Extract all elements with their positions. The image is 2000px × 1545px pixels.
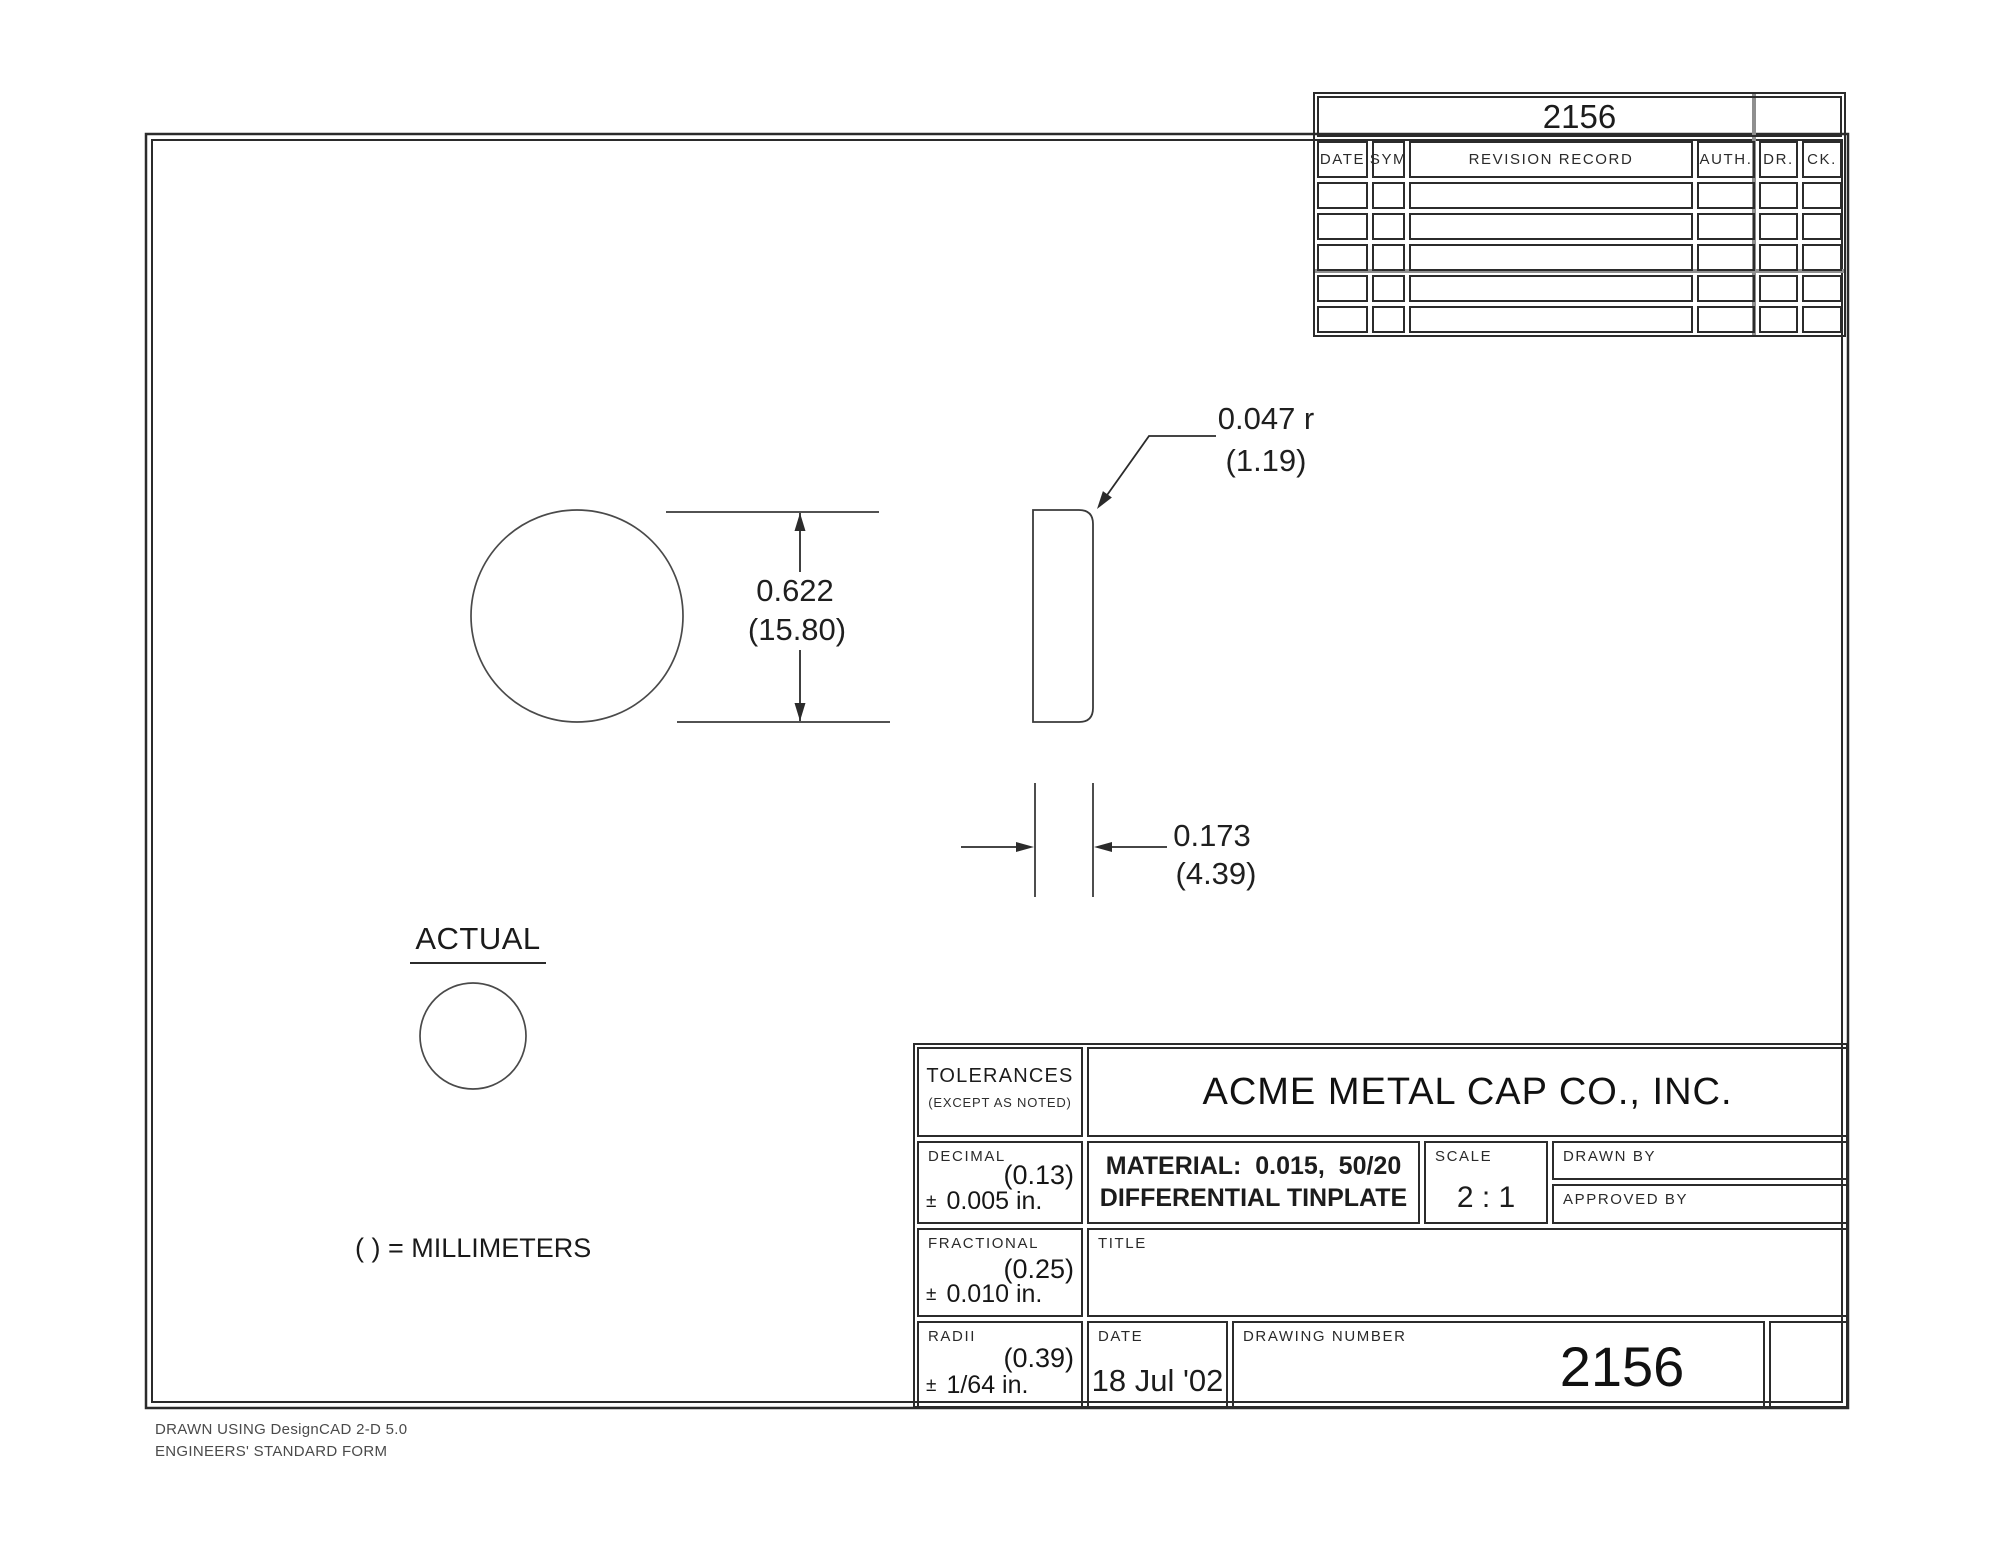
revision-row-cell bbox=[1802, 182, 1842, 209]
engineering-drawing-sheet: { "revision_table": { "header_number": "… bbox=[0, 0, 2000, 1545]
revision-row-cell bbox=[1697, 306, 1755, 333]
diameter-value-mm: (15.80) bbox=[748, 612, 846, 648]
thickness-value-mm: (4.39) bbox=[1176, 856, 1257, 892]
units-note: ( ) = MILLIMETERS bbox=[355, 1233, 591, 1264]
decimal-value: ±0.005 in. bbox=[926, 1187, 1042, 1216]
arrowhead-left-icon bbox=[1094, 842, 1112, 852]
revision-row-cell bbox=[1409, 275, 1693, 302]
leader-arrowhead-icon bbox=[1097, 491, 1112, 509]
revision-row-cell bbox=[1317, 244, 1368, 271]
revision-row-cell bbox=[1759, 182, 1798, 209]
revision-row-cell bbox=[1759, 213, 1798, 240]
plus-minus-icon: ± bbox=[926, 1375, 946, 1396]
radius-value-in: 0.047 r bbox=[1218, 401, 1315, 437]
fractional-value-text: 0.010 in. bbox=[946, 1280, 1042, 1308]
radii-value: ±1/64 in. bbox=[926, 1371, 1028, 1400]
revision-col-record: REVISION RECORD bbox=[1409, 141, 1693, 178]
revision-row-cell bbox=[1372, 182, 1405, 209]
revision-row-cell bbox=[1317, 213, 1368, 240]
decimal-tolerance-cell: DECIMAL (0.13) ±0.005 in. bbox=[917, 1141, 1083, 1224]
date-label: DATE bbox=[1098, 1328, 1143, 1345]
approved-by-label: APPROVED BY bbox=[1563, 1191, 1688, 1208]
revision-row-cell bbox=[1759, 275, 1798, 302]
date-value: 18 Jul '02 bbox=[1089, 1363, 1226, 1399]
date-cell: DATE 18 Jul '02 bbox=[1087, 1321, 1228, 1408]
fractional-label: FRACTIONAL bbox=[928, 1235, 1039, 1252]
company-name: ACME METAL CAP CO., INC. bbox=[1087, 1047, 1848, 1137]
approved-by-cell: APPROVED BY bbox=[1552, 1184, 1848, 1224]
tolerances-subtitle: (EXCEPT AS NOTED) bbox=[919, 1095, 1081, 1110]
side-view-outline bbox=[1033, 510, 1093, 722]
revision-col-dr: DR. bbox=[1759, 141, 1798, 178]
radii-label: RADII bbox=[928, 1328, 976, 1345]
material-line1: MATERIAL: 0.015, 50/20 bbox=[1106, 1152, 1401, 1181]
revision-col-auth: AUTH. bbox=[1697, 141, 1755, 178]
revision-row-cell bbox=[1802, 306, 1842, 333]
footer-line2: ENGINEERS' STANDARD FORM bbox=[155, 1443, 387, 1460]
title-block-corner-cell bbox=[1769, 1321, 1848, 1408]
scale-label: SCALE bbox=[1435, 1148, 1492, 1165]
radius-leader-line bbox=[1100, 436, 1216, 505]
material-line2: DIFFERENTIAL TINPLATE bbox=[1100, 1184, 1407, 1213]
material-cell: MATERIAL: 0.015, 50/20 DIFFERENTIAL TINP… bbox=[1087, 1141, 1420, 1224]
revision-row-cell bbox=[1317, 275, 1368, 302]
title-cell: TITLE bbox=[1087, 1228, 1848, 1317]
footer-line1: DRAWN USING DesignCAD 2-D 5.0 bbox=[155, 1421, 407, 1438]
revision-row-cell bbox=[1409, 244, 1693, 271]
revision-row-cell bbox=[1802, 213, 1842, 240]
revision-row-cell bbox=[1759, 244, 1798, 271]
revision-row-cell bbox=[1697, 275, 1755, 302]
revision-row-cell bbox=[1759, 306, 1798, 333]
revision-row-cell bbox=[1317, 182, 1368, 209]
revision-col-date: DATE bbox=[1317, 141, 1368, 178]
revision-row-cell bbox=[1372, 306, 1405, 333]
thickness-value-in: 0.173 bbox=[1173, 818, 1251, 854]
radii-value-text: 1/64 in. bbox=[946, 1371, 1028, 1399]
revision-row-cell bbox=[1372, 213, 1405, 240]
drawing-number-value: 2156 bbox=[1560, 1334, 1685, 1399]
revision-row-cell bbox=[1409, 213, 1693, 240]
fractional-value: ±0.010 in. bbox=[926, 1280, 1042, 1309]
radii-tolerance-cell: RADII (0.39) ±1/64 in. bbox=[917, 1321, 1083, 1408]
revision-row-cell bbox=[1409, 306, 1693, 333]
revision-col-sym: SYM bbox=[1372, 141, 1405, 178]
revision-row-cell bbox=[1697, 182, 1755, 209]
scale-value: 2 : 1 bbox=[1426, 1181, 1546, 1215]
top-view-circle bbox=[471, 510, 683, 722]
tolerances-title: TOLERANCES bbox=[919, 1065, 1081, 1088]
revision-row-cell bbox=[1372, 275, 1405, 302]
title-label: TITLE bbox=[1098, 1235, 1147, 1252]
revision-row-cell bbox=[1409, 182, 1693, 209]
plus-minus-icon: ± bbox=[926, 1191, 946, 1212]
arrowhead-down-icon bbox=[795, 703, 806, 721]
radii-mm: (0.39) bbox=[1003, 1343, 1074, 1374]
drawing-number-label: DRAWING NUMBER bbox=[1243, 1328, 1407, 1345]
drawing-number-cell: DRAWING NUMBER 2156 bbox=[1232, 1321, 1765, 1408]
arrowhead-up-icon bbox=[795, 513, 806, 531]
arrowhead-right-icon bbox=[1016, 842, 1034, 852]
revision-header-number: 2156 bbox=[1317, 96, 1842, 137]
radius-value-mm: (1.19) bbox=[1226, 443, 1307, 479]
title-block: TOLERANCES (EXCEPT AS NOTED) ACME METAL … bbox=[913, 1043, 1848, 1408]
tolerances-cell: TOLERANCES (EXCEPT AS NOTED) bbox=[917, 1047, 1083, 1137]
actual-size-circle bbox=[420, 983, 526, 1089]
diameter-value-in: 0.622 bbox=[756, 573, 834, 609]
revision-row-cell bbox=[1697, 244, 1755, 271]
decimal-label: DECIMAL bbox=[928, 1148, 1006, 1165]
revision-col-ck: CK. bbox=[1802, 141, 1842, 178]
drawn-by-label: DRAWN BY bbox=[1563, 1148, 1656, 1165]
decimal-value-text: 0.005 in. bbox=[946, 1187, 1042, 1215]
revision-row-cell bbox=[1697, 213, 1755, 240]
scale-cell: SCALE 2 : 1 bbox=[1424, 1141, 1548, 1224]
revision-row-cell bbox=[1802, 244, 1842, 271]
fractional-tolerance-cell: FRACTIONAL (0.25) ±0.010 in. bbox=[917, 1228, 1083, 1317]
revision-table: 2156 DATE SYM REVISION RECORD AUTH. DR. … bbox=[1313, 92, 1846, 337]
actual-label: ACTUAL bbox=[410, 921, 546, 964]
revision-row-cell bbox=[1317, 306, 1368, 333]
plus-minus-icon: ± bbox=[926, 1284, 946, 1305]
revision-row-cell bbox=[1802, 275, 1842, 302]
drawn-by-cell: DRAWN BY bbox=[1552, 1141, 1848, 1180]
revision-row-cell bbox=[1372, 244, 1405, 271]
